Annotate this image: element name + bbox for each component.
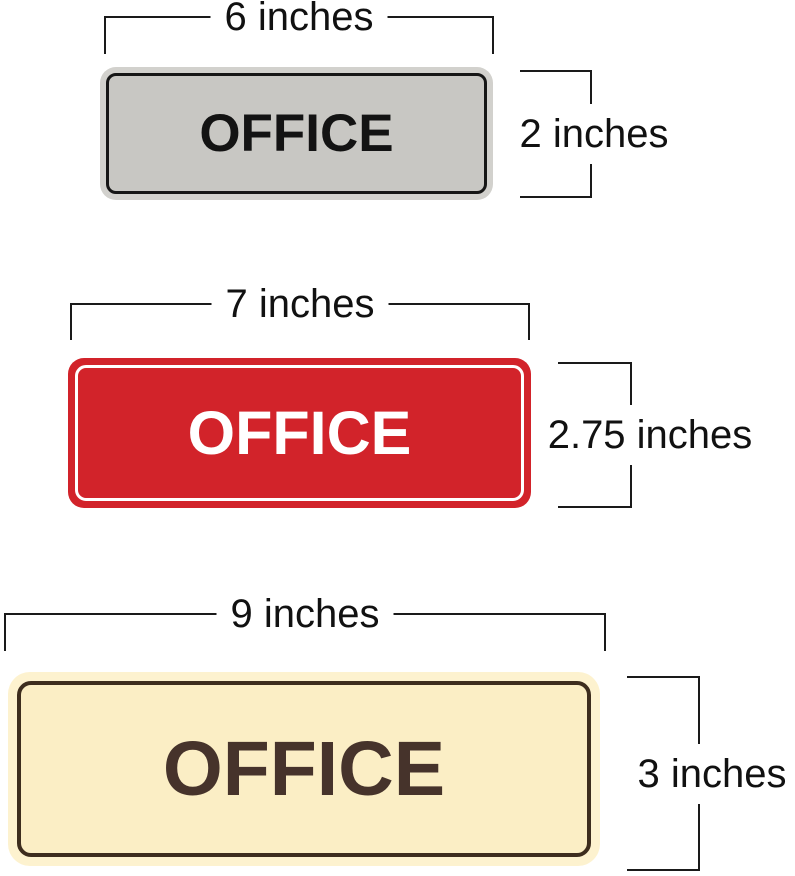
- height-dimension-label-gray: 2 inches: [516, 104, 673, 164]
- height-dimension-label-cream: 3 inches: [634, 744, 791, 804]
- office-sign-gray: OFFICE: [100, 67, 493, 200]
- sign-inner-border-gray: OFFICE: [106, 73, 487, 194]
- office-sign-cream: OFFICE: [8, 672, 600, 866]
- width-dimension-label-red: 7 inches: [212, 282, 389, 326]
- sign-text-gray: OFFICE: [199, 103, 393, 164]
- sign-inner-border-cream: OFFICE: [17, 681, 591, 857]
- width-dimension-label-gray: 6 inches: [211, 0, 388, 39]
- sign-inner-border-red: OFFICE: [75, 365, 524, 501]
- width-dimension-bracket-cream: 9 inches: [4, 613, 606, 651]
- width-dimension-label-cream: 9 inches: [217, 592, 394, 636]
- height-dimension-bracket-red: 2.75 inches: [558, 362, 632, 508]
- width-dimension-bracket-red: 7 inches: [70, 303, 530, 340]
- office-sign-red: OFFICE: [68, 358, 531, 508]
- sign-text-red: OFFICE: [188, 398, 412, 468]
- height-dimension-label-red: 2.75 inches: [544, 405, 757, 465]
- height-dimension-bracket-gray: 2 inches: [520, 70, 592, 198]
- office-sign-size-diagram: 6 inches OFFICE 2 inches 7 inches OFFICE…: [0, 0, 795, 876]
- height-dimension-bracket-cream: 3 inches: [627, 676, 700, 871]
- width-dimension-bracket-gray: 6 inches: [104, 16, 494, 54]
- sign-text-cream: OFFICE: [163, 725, 445, 814]
